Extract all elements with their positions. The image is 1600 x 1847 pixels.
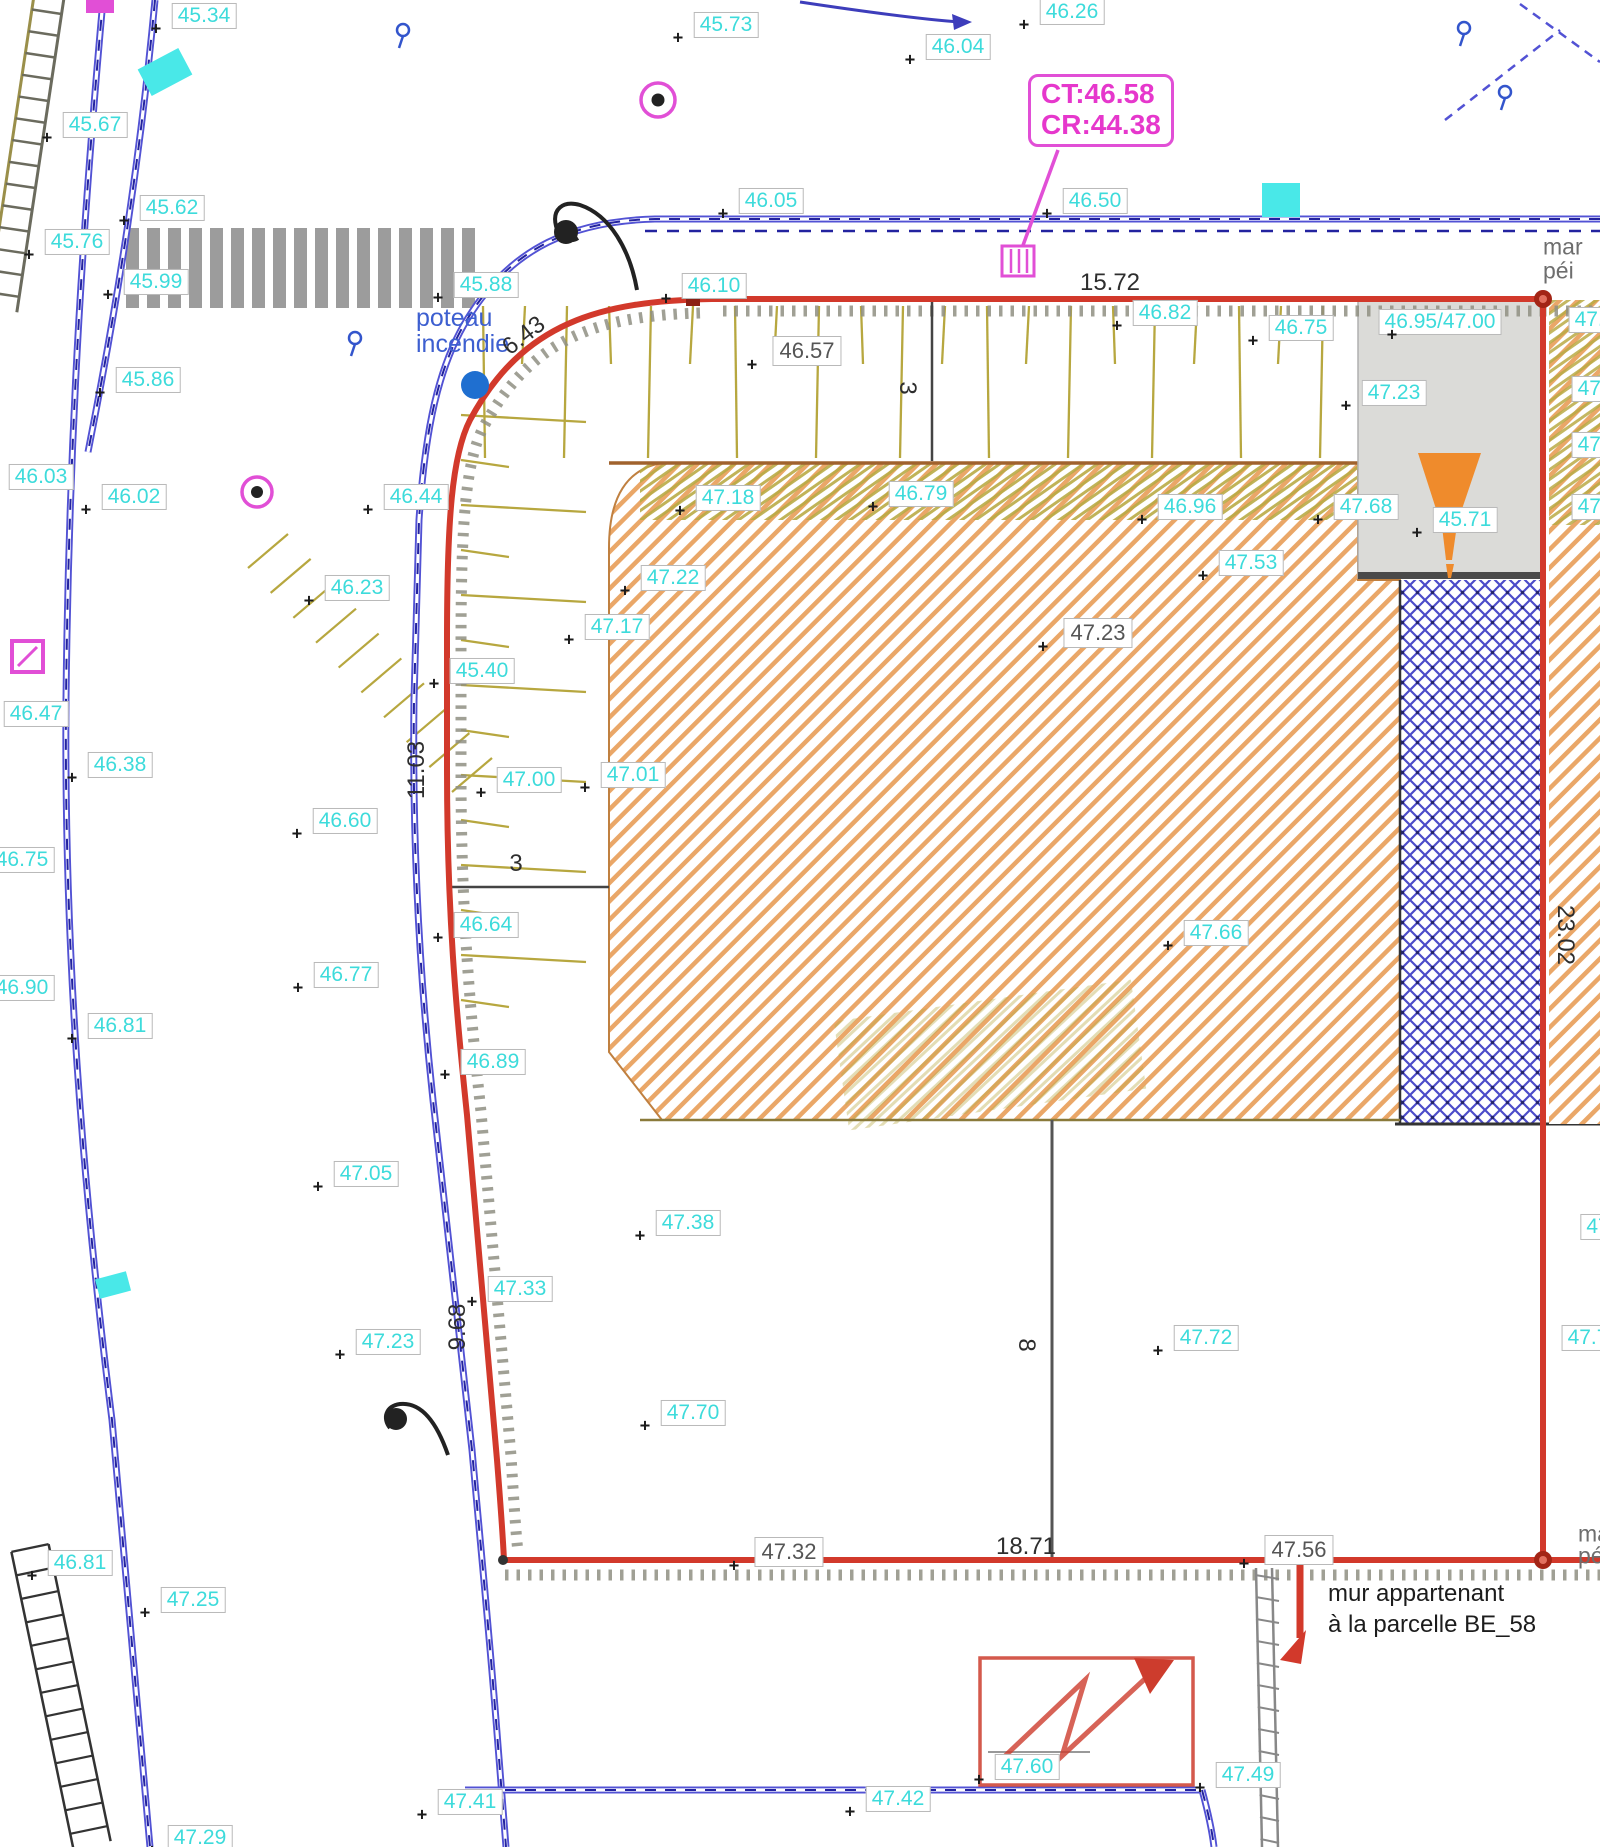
survey-point-cross: + <box>1112 316 1122 336</box>
spot-elevation-label: 47.18 <box>696 485 761 511</box>
survey-point-cross: + <box>718 204 728 224</box>
spot-elevation-label: 47.2 <box>1569 307 1600 333</box>
survey-point-cross: + <box>433 288 443 308</box>
spot-elevation-label: 47.33 <box>488 1276 553 1302</box>
spot-elevation-label: 45.86 <box>116 367 181 393</box>
spot-elevation-label: 45.73 <box>694 12 759 38</box>
survey-point-cross: + <box>293 978 303 998</box>
survey-point-cross: + <box>147 1841 157 1847</box>
spot-elevation-label: 47.6 <box>1572 432 1600 458</box>
spot-elevation-label: 46.79 <box>889 481 954 507</box>
survey-point-cross: + <box>868 497 878 517</box>
dimension-label: 18.71 <box>996 1533 1056 1561</box>
spot-elevation-label: 47.22 <box>641 565 706 591</box>
dimension-label: 3 <box>509 850 522 878</box>
manhole-callout: CT:46.58 CR:44.38 <box>1028 74 1174 147</box>
survey-point-cross: + <box>440 1065 450 1085</box>
survey-point-cross: + <box>429 674 439 694</box>
spot-elevation-label: 46.10 <box>682 273 747 299</box>
spot-elevation-label: 47.05 <box>334 1161 399 1187</box>
spot-elevation-label: 47.70 <box>661 1400 726 1426</box>
spot-elevation-label: 47.38 <box>656 1210 721 1236</box>
hydrant-note: poteau incendie <box>416 306 509 357</box>
spot-elevation-label: 47.1 <box>1572 376 1600 402</box>
survey-point-cross: + <box>1137 510 1147 530</box>
labels-layer: CT:46.58 CR:44.38 poteau incendie mur ap… <box>0 0 1600 1847</box>
spot-elevation-label: 46.81 <box>48 1550 113 1576</box>
spot-elevation-label: 46.38 <box>88 752 153 778</box>
survey-point-cross: + <box>304 591 314 611</box>
spot-elevation-label: 47.23 <box>356 1329 421 1355</box>
boxed-elevation-label: 47.23 <box>1063 618 1132 648</box>
spot-elevation-label: 46.50 <box>1063 188 1128 214</box>
survey-point-cross: + <box>67 1029 77 1049</box>
spot-elevation-label: 47.01 <box>601 762 666 788</box>
dimension-label: 3 <box>893 381 921 394</box>
survey-point-cross: + <box>24 245 34 265</box>
spot-elevation-label: 47.53 <box>1219 550 1284 576</box>
spot-elevation-label: 45.99 <box>124 269 189 295</box>
spot-elevation-label: 46.44 <box>384 484 449 510</box>
survey-point-cross: + <box>95 383 105 403</box>
survey-point-cross: + <box>119 211 129 231</box>
spot-elevation-label: 47.60 <box>995 1754 1060 1780</box>
survey-point-cross: + <box>1248 331 1258 351</box>
spot-elevation-label: 46.26 <box>1040 0 1105 25</box>
spot-elevation-label: 46.23 <box>325 575 390 601</box>
callout-cr: CR:44.38 <box>1041 109 1161 140</box>
boxed-elevation-label: 46.57 <box>772 336 841 366</box>
survey-point-cross: + <box>1195 1778 1205 1798</box>
spot-elevation-label: 47.41 <box>438 1789 503 1815</box>
spot-elevation-label: 47.66 <box>1184 920 1249 946</box>
survey-point-cross: + <box>747 355 757 375</box>
spot-elevation-label: 46.60 <box>313 808 378 834</box>
spot-elevation-label: 46.64 <box>454 912 519 938</box>
dimension-label: 23.02 <box>1551 905 1579 965</box>
spot-elevation-label: 47.7 <box>1562 1325 1600 1351</box>
survey-point-cross: + <box>620 581 630 601</box>
survey-point-cross: + <box>103 285 113 305</box>
spot-elevation-label: 45.88 <box>454 272 519 298</box>
survey-point-cross: + <box>640 1416 650 1436</box>
survey-point-cross: + <box>81 500 91 520</box>
spot-elevation-label: 46.75 <box>1269 315 1334 341</box>
dimension-label: 8 <box>1012 1338 1040 1351</box>
survey-point-cross: + <box>42 128 52 148</box>
spot-elevation-label: 46.03 <box>9 464 74 490</box>
callout-ct: CT:46.58 <box>1041 78 1161 109</box>
dimension-label: 11.03 <box>403 741 431 799</box>
spot-elevation-label: 46.89 <box>461 1049 526 1075</box>
survey-point-cross: + <box>1042 204 1052 224</box>
survey-point-cross: + <box>1198 566 1208 586</box>
survey-point-cross: + <box>292 824 302 844</box>
spot-elevation-label: 47.42 <box>866 1786 931 1812</box>
survey-point-cross: + <box>335 1345 345 1365</box>
spot-elevation-label: 46.77 <box>314 962 379 988</box>
spot-elevation-label: 47 <box>1580 1214 1600 1240</box>
survey-point-cross: + <box>27 1566 37 1586</box>
survey-point-cross: + <box>1163 936 1173 956</box>
survey-point-cross: + <box>675 501 685 521</box>
spot-elevation-label: 45.62 <box>140 195 205 221</box>
spot-elevation-label: 46.90 <box>0 975 54 1001</box>
spot-elevation-label: 46.96 <box>1158 494 1223 520</box>
spot-elevation-label: 47.17 <box>585 614 650 640</box>
survey-point-cross: + <box>673 28 683 48</box>
spot-elevation-label: 47.25 <box>161 1587 226 1613</box>
spot-elevation-label: 46.02 <box>102 484 167 510</box>
survey-point-cross: + <box>313 1177 323 1197</box>
spot-elevation-label: 47.49 <box>1216 1762 1281 1788</box>
survey-point-cross: + <box>1313 510 1323 530</box>
boxed-elevation-label: 47.56 <box>1264 1535 1333 1565</box>
survey-point-cross: + <box>845 1802 855 1822</box>
survey-point-cross: + <box>635 1226 645 1246</box>
spot-elevation-label: 46.05 <box>739 188 804 214</box>
survey-point-cross: + <box>729 1556 739 1576</box>
wall-note: mur appartenant à la parcelle BE_58 <box>1328 1578 1536 1640</box>
spot-elevation-label: 46.47 <box>4 701 69 727</box>
survey-point-cross: + <box>564 630 574 650</box>
spot-elevation-label: 46.75 <box>0 847 54 873</box>
spot-elevation-label: 46.81 <box>88 1013 153 1039</box>
spot-elevation-label: 45.34 <box>172 3 237 29</box>
survey-point-cross: + <box>1341 396 1351 416</box>
boxed-elevation-label: 47.32 <box>754 1537 823 1567</box>
survey-point-cross: + <box>1038 637 1048 657</box>
spot-elevation-label: 46.04 <box>926 34 991 60</box>
spot-elevation-label: 47.00 <box>497 767 562 793</box>
survey-point-cross: + <box>363 500 373 520</box>
edge-truncated-text: pé <box>1578 1543 1600 1570</box>
spot-elevation-label: 47.68 <box>1334 494 1399 520</box>
survey-point-cross: + <box>140 1603 150 1623</box>
survey-point-cross: + <box>905 50 915 70</box>
spot-elevation-label: 45.76 <box>45 229 110 255</box>
survey-point-cross: + <box>974 1770 984 1790</box>
survey-point-cross: + <box>661 289 671 309</box>
survey-plan-canvas: CT:46.58 CR:44.38 poteau incendie mur ap… <box>0 0 1600 1847</box>
edge-truncated-text: péi <box>1543 258 1574 285</box>
survey-point-cross: + <box>151 19 161 39</box>
survey-point-cross: + <box>1387 325 1397 345</box>
spot-elevation-label: 45.40 <box>450 658 515 684</box>
survey-point-cross: + <box>580 778 590 798</box>
dimension-label: 15.72 <box>1080 269 1140 297</box>
spot-elevation-label: 47.72 <box>1174 1325 1239 1351</box>
spot-elevation-label: 46.82 <box>1133 300 1198 326</box>
spot-elevation-label: 47.5 <box>1572 494 1600 520</box>
survey-point-cross: + <box>476 783 486 803</box>
spot-elevation-label: 47.29 <box>168 1825 233 1847</box>
dimension-label: 9.68 <box>444 1304 472 1351</box>
survey-point-cross: + <box>1412 523 1422 543</box>
survey-point-cross: + <box>1239 1554 1249 1574</box>
survey-point-cross: + <box>1019 15 1029 35</box>
survey-point-cross: + <box>1153 1341 1163 1361</box>
survey-point-cross: + <box>67 768 77 788</box>
spot-elevation-label: 45.67 <box>63 112 128 138</box>
survey-point-cross: + <box>417 1805 427 1825</box>
spot-elevation-label: 47.23 <box>1362 380 1427 406</box>
survey-point-cross: + <box>433 928 443 948</box>
edge-truncated-text: mar <box>1543 234 1583 261</box>
spot-elevation-label: 45.71 <box>1433 507 1498 533</box>
